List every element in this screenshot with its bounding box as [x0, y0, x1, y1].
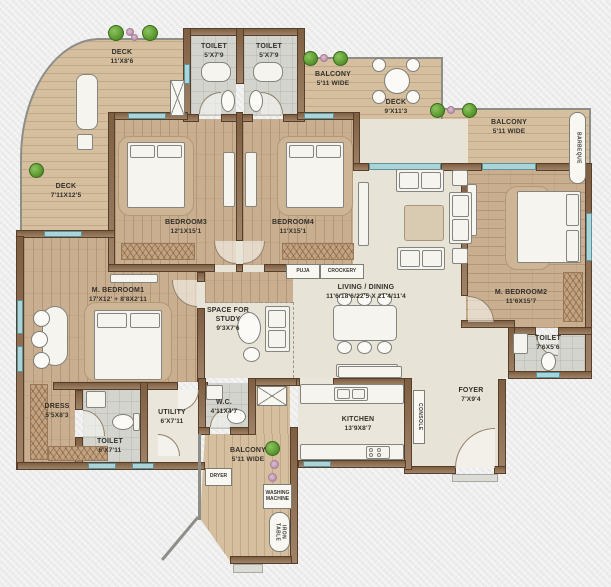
dining-chair: [377, 341, 392, 354]
study-boundary-right: [293, 302, 294, 378]
side-table: [452, 248, 468, 264]
patio-chair: [372, 58, 386, 72]
window: [304, 113, 334, 119]
room-label-deck-left: DECK7'11X12'5: [51, 182, 82, 201]
tree-icon: [29, 163, 44, 178]
burner: [369, 453, 373, 457]
study-chair: [243, 347, 260, 362]
room-label-toilet-m2: TOILET7'6X5'6: [535, 334, 561, 353]
wall: [108, 112, 115, 272]
corridor-floor: [205, 272, 293, 303]
wall: [353, 163, 369, 171]
room-label-utility: UTILITY6'X7'11: [158, 408, 186, 427]
wc-bowl: [112, 414, 134, 430]
buffet-unit: [338, 366, 402, 378]
window: [44, 231, 82, 237]
flower-icon: [320, 54, 328, 62]
dresser-bedroom4: [245, 152, 257, 207]
chaise-lounge: [76, 74, 98, 130]
wall: [498, 379, 506, 474]
tree-icon: [142, 25, 158, 41]
wc-bowl: [249, 90, 263, 112]
wall: [248, 378, 256, 435]
dining-chair: [337, 341, 352, 354]
pillow: [566, 194, 579, 226]
window: [586, 213, 592, 261]
puja-label: PUJA: [296, 269, 309, 275]
room-label-m-bedroom2: M. BEDROOM211'6X15'7: [495, 288, 547, 307]
sofa-cushion: [422, 250, 442, 267]
wardrobe-ledge-mbr1: [110, 274, 158, 283]
wall: [236, 264, 243, 272]
pillow: [130, 313, 160, 328]
burner: [369, 448, 373, 452]
iron-table-label: IRON TABLE: [274, 523, 286, 541]
rug-bedroom4: [282, 243, 354, 260]
room-label-balcony-bottom: BALCONY5'11 WIDE: [230, 446, 266, 465]
room-label-balcony-right: BALCONY5'11 WIDE: [491, 118, 527, 137]
patio-chair: [406, 58, 420, 72]
sofa-cushion: [268, 310, 286, 328]
balcony-step: [233, 564, 263, 573]
window: [536, 372, 560, 378]
washbasin: [253, 62, 283, 82]
sink-bowl: [352, 389, 365, 399]
wc-bowl: [221, 90, 235, 112]
flower-icon: [131, 34, 138, 41]
tree-icon: [462, 103, 477, 118]
floor-plan: PUJA CROCKERY CONSOLE BARBEQUE DRYER WAS…: [0, 0, 611, 587]
dining-chair: [357, 341, 372, 354]
barbeque-label: BARBEQUE: [575, 132, 581, 164]
crockery-label: CROCKERY: [328, 269, 356, 275]
washbasin: [86, 391, 106, 408]
window: [132, 463, 154, 469]
console-label: CONSOLE: [416, 403, 422, 431]
window: [17, 300, 23, 334]
wardrobe-mbr2: [563, 272, 583, 322]
washbasin: [201, 62, 231, 82]
window: [17, 346, 23, 372]
crockery-unit: CROCKERY: [320, 264, 364, 279]
sofa-cushion: [399, 172, 419, 189]
coffee-table: [404, 205, 444, 241]
tree-icon: [108, 25, 124, 41]
shaft: [170, 80, 185, 116]
room-label-toilet-top-left: TOILET5'X7'9: [201, 42, 227, 61]
washing-machine-unit: WASHING MACHINE: [263, 484, 292, 509]
wall: [236, 28, 244, 84]
room-label-dress: DRESS5'5X8'3: [44, 402, 69, 421]
washbasin: [513, 333, 528, 354]
tv-unit: [358, 182, 369, 246]
tree-icon: [333, 51, 348, 66]
wall: [75, 390, 83, 410]
pillow: [97, 313, 127, 328]
dresser-bedroom3: [223, 152, 235, 207]
pillow: [566, 230, 579, 262]
console-table: CONSOLE: [413, 390, 425, 444]
balcony-rail-slant: [161, 516, 199, 561]
sink-bowl: [337, 389, 350, 399]
sofa-cushion: [268, 330, 286, 348]
wall: [230, 556, 292, 564]
iron-table-unit: IRON TABLE: [269, 512, 290, 552]
tree-icon: [303, 51, 318, 66]
wall: [236, 112, 243, 241]
wall: [53, 382, 178, 390]
chair: [33, 310, 50, 327]
wall: [404, 378, 412, 470]
room-label-toilet-top-right: TOILET5'X7'9: [256, 42, 282, 61]
wc-bowl: [541, 352, 556, 371]
wall: [494, 466, 506, 474]
chair: [31, 331, 48, 348]
burner: [377, 448, 381, 452]
wall: [198, 378, 206, 434]
wall: [558, 327, 592, 335]
window: [128, 113, 166, 119]
wall: [108, 264, 215, 272]
room-label-living-dining: LIVING / DINING11'6/18'6/22'5 X 21'4/11'…: [326, 283, 406, 302]
flower-icon: [447, 106, 455, 114]
room-label-wc: W.C.4'11X4'7: [211, 398, 238, 417]
washing-machine-label: WASHING MACHINE: [266, 491, 290, 503]
wall: [255, 378, 297, 386]
chair: [33, 352, 50, 369]
room-label-bedroom4: BEDROOM411'X15'1: [272, 218, 314, 237]
tree-icon: [430, 103, 445, 118]
burner: [377, 453, 381, 457]
wall: [297, 28, 305, 122]
room-label-toilet-m1: TOILET6'X7'11: [97, 437, 123, 456]
wall: [197, 272, 205, 282]
dining-table: [333, 305, 397, 341]
pillow: [130, 145, 155, 158]
room-label-deck-center: DECK9'X11'3: [385, 98, 408, 117]
side-table: [452, 170, 468, 186]
dryer-unit: DRYER: [205, 468, 232, 486]
room-label-kitchen: KITCHEN13'9X8'7: [342, 415, 375, 434]
sofa-cushion: [400, 250, 420, 267]
puja-unit: PUJA: [286, 264, 320, 279]
sofa-cushion: [452, 219, 469, 241]
dryer-label: DRYER: [210, 474, 227, 480]
study-boundary-top: [205, 302, 293, 303]
entry-step: [452, 474, 498, 482]
flower-icon: [268, 473, 277, 482]
room-label-balcony-top: BALCONY5'11 WIDE: [315, 70, 351, 89]
window: [88, 463, 116, 469]
patio-table: [384, 68, 410, 94]
tree-icon: [265, 441, 280, 456]
patio-chair: [406, 90, 420, 104]
pillow: [157, 145, 182, 158]
wardrobe-dress: [30, 384, 48, 460]
pillow: [316, 145, 341, 158]
pillow: [289, 145, 314, 158]
window: [303, 461, 331, 467]
barbeque-unit: BARBEQUE: [569, 112, 586, 184]
wall: [140, 382, 148, 468]
room-label-bedroom3: BEDROOM312'1X15'1: [165, 218, 207, 237]
mbr2-passage-floor: [461, 320, 511, 378]
wall: [585, 163, 592, 379]
rug-bedroom3: [121, 243, 195, 260]
window: [482, 163, 536, 170]
flower-icon: [270, 460, 279, 469]
room-label-m-bedroom1: M. BEDROOM117'X12' + 8'8X2'11: [89, 286, 147, 305]
room-label-study: SPACE FOR STUDY9'3X7'6: [202, 306, 254, 334]
deck-side-table: [77, 134, 93, 150]
sofa-cushion: [421, 172, 441, 189]
sofa-cushion: [452, 195, 469, 217]
room-label-deck-top: DECK11'X8'6: [111, 48, 134, 67]
balcony-rail: [198, 434, 201, 520]
room-label-foyer: FOYER7'X9'4: [458, 386, 483, 405]
folding-table: [257, 386, 287, 406]
wall: [183, 28, 305, 36]
wc-tank: [133, 413, 140, 431]
